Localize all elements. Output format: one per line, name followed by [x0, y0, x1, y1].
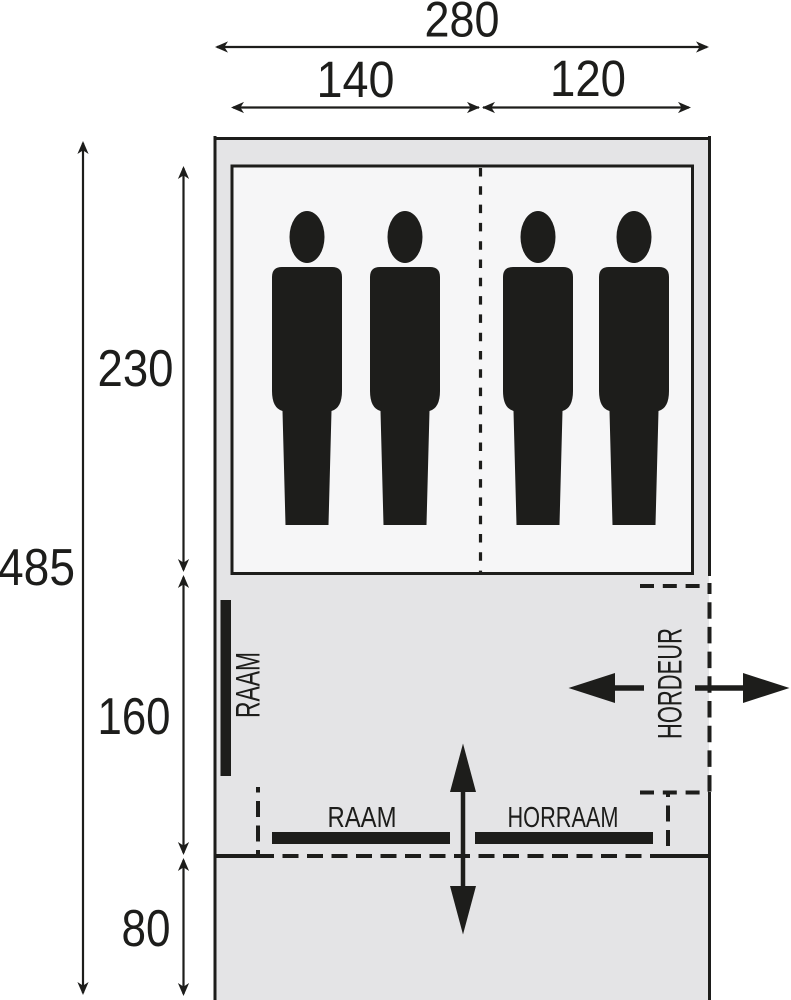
svg-text:120: 120: [550, 50, 626, 107]
svg-text:140: 140: [317, 51, 395, 108]
svg-text:RAAM: RAAM: [230, 652, 268, 718]
svg-text:80: 80: [122, 900, 171, 958]
svg-text:280: 280: [425, 0, 500, 48]
svg-text:HORDEUR: HORDEUR: [652, 628, 690, 739]
svg-text:HORRAAM: HORRAAM: [508, 802, 619, 834]
svg-text:160: 160: [98, 688, 171, 746]
svg-text:230: 230: [98, 340, 174, 398]
svg-text:485: 485: [0, 539, 75, 597]
svg-text:RAAM: RAAM: [328, 802, 397, 834]
